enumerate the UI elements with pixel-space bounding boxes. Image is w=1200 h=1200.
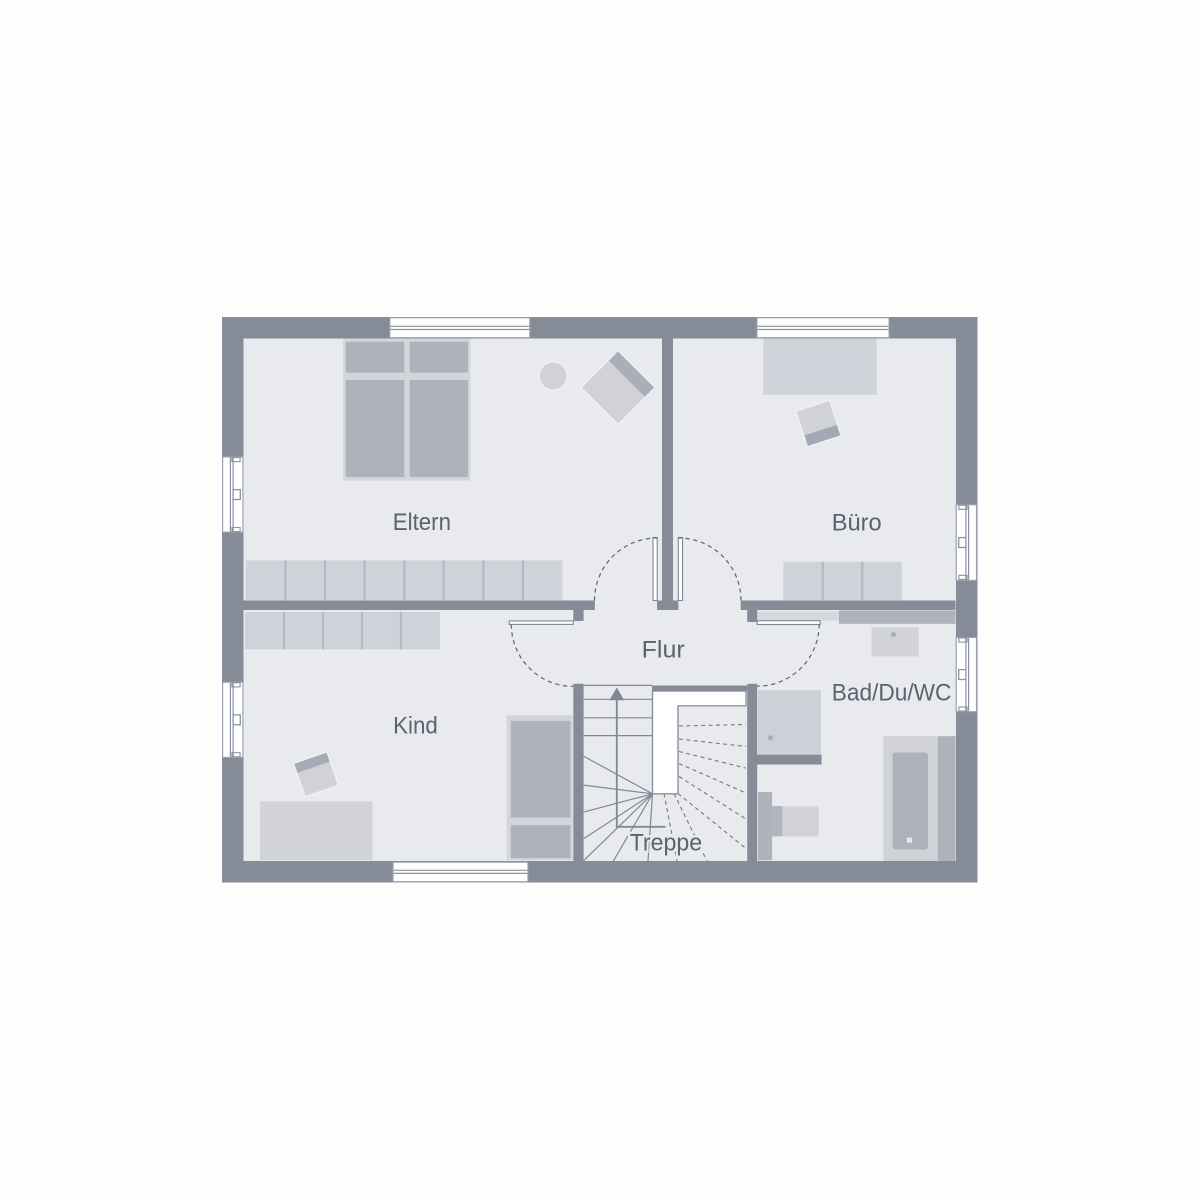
svg-text:Treppe: Treppe [630, 829, 703, 856]
svg-text:Bad/Du/WC: Bad/Du/WC [832, 680, 952, 707]
svg-text:Flur: Flur [642, 637, 685, 664]
svg-text:Eltern: Eltern [393, 509, 451, 536]
svg-text:Kind: Kind [393, 713, 438, 740]
svg-text:Büro: Büro [832, 510, 882, 537]
